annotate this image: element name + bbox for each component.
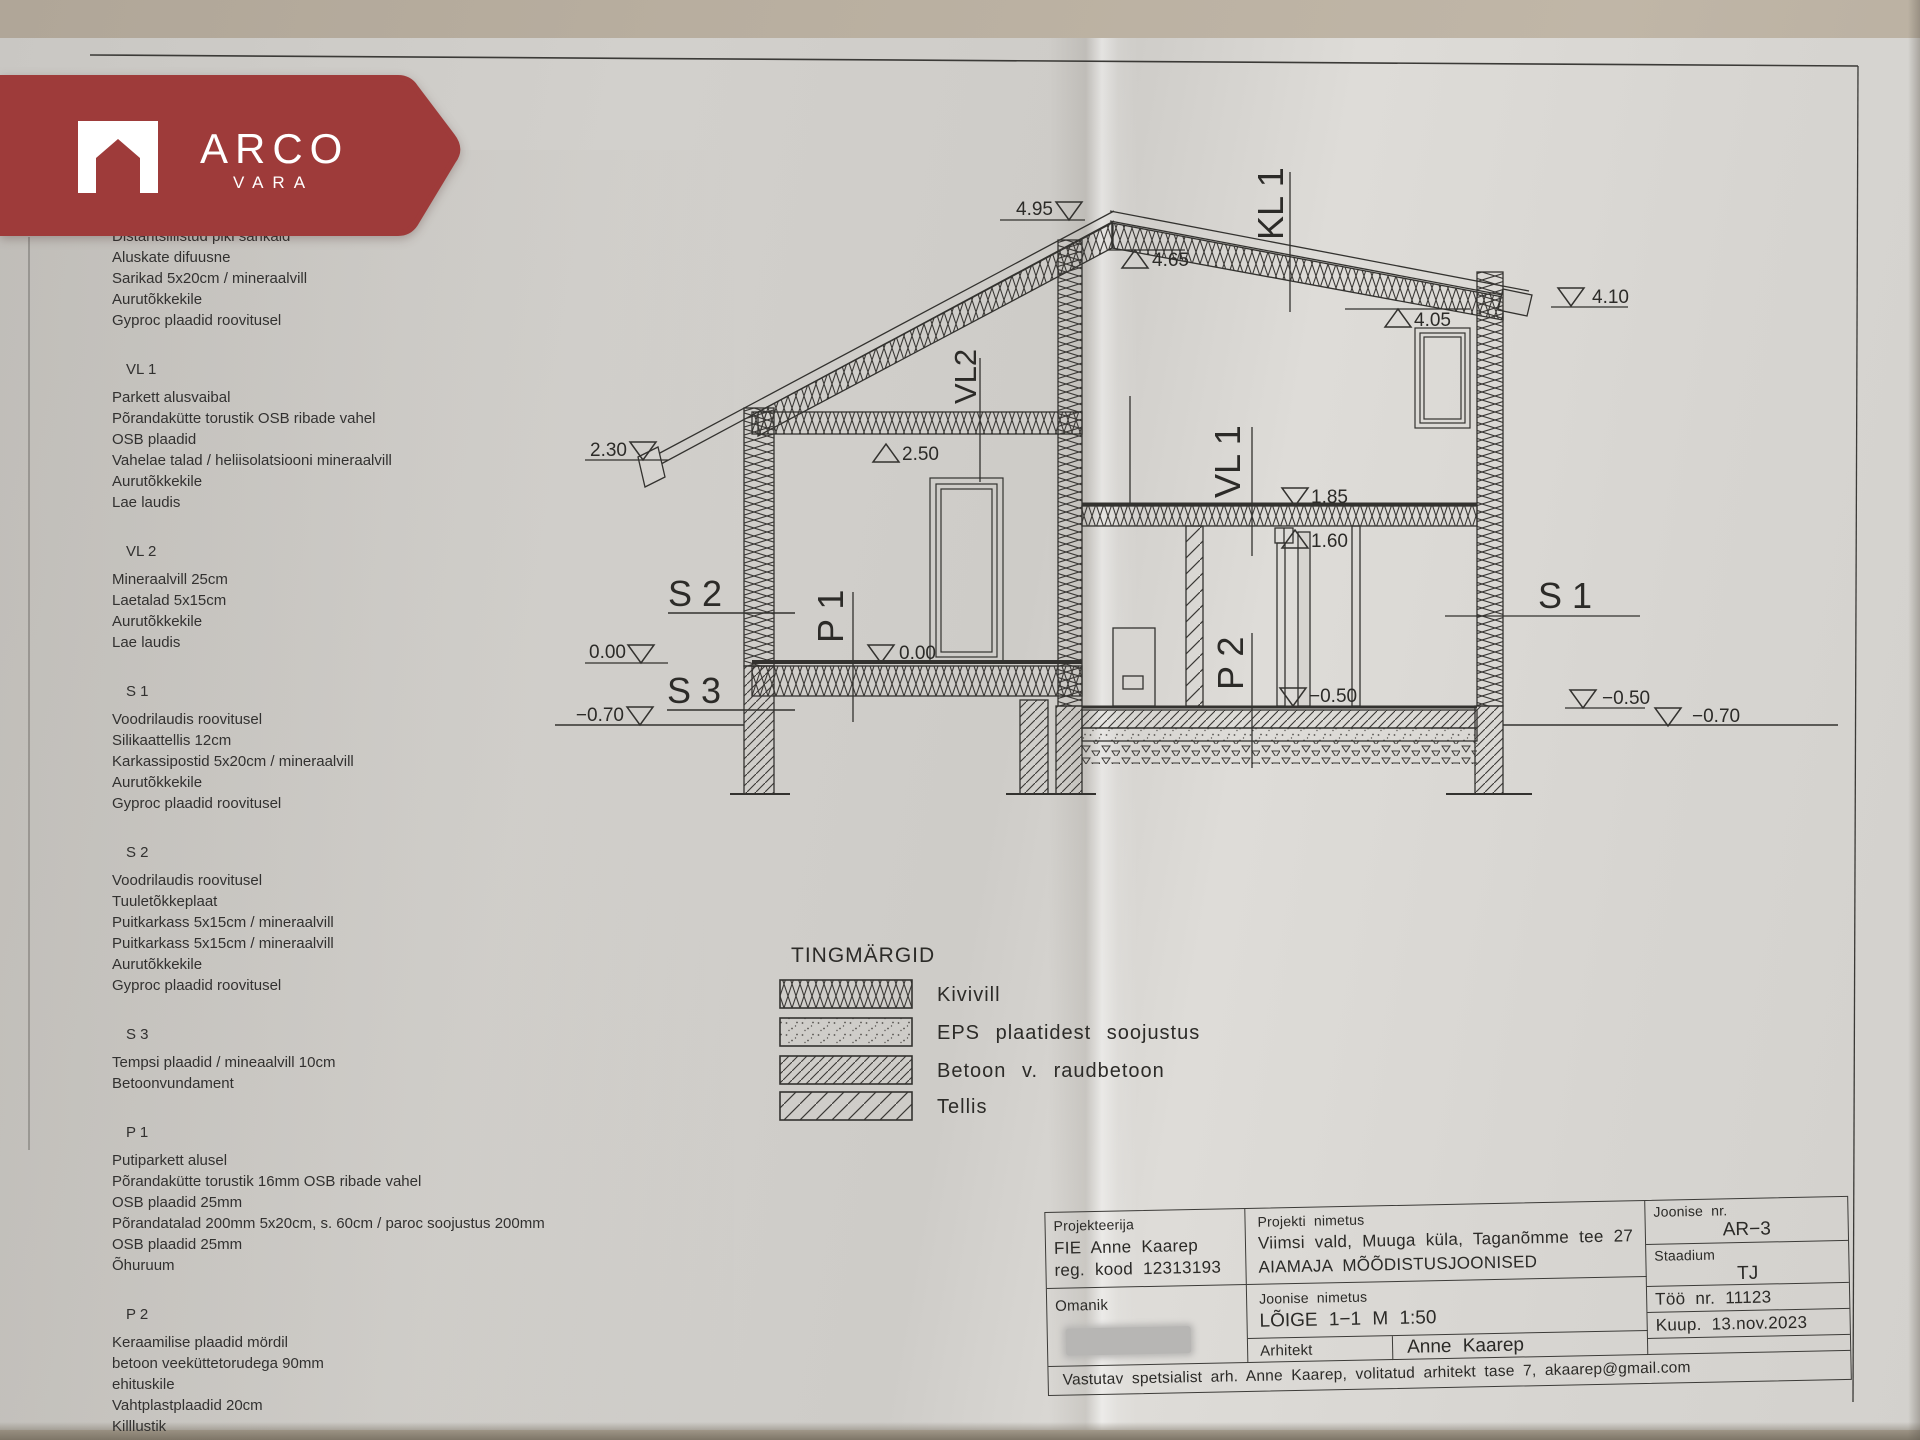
elevation-405: 4.05 (1414, 310, 1451, 331)
spec-line: Karkassipostid 5x20cm / mineraalvill (112, 751, 582, 772)
spec-line: Gyproc plaadid roovitusel (112, 310, 582, 331)
spec-line: Aurutõkkekile (112, 611, 582, 632)
spec-line: Tempsi plaadid / mineaalvill 10cm (112, 1052, 582, 1073)
joonise-nr-value: AR−3 (1646, 1217, 1848, 1243)
titleblock-projekt-cell: Projekti nimetus Viimsi vald, Muuga küla… (1245, 1201, 1646, 1285)
titleblock-joonise-nr-cell: Joonise nr. AR−3 (1645, 1197, 1848, 1245)
spec-line: Betoonvundament (112, 1073, 582, 1094)
titleblock-projekteerija-cell: Projekteerija FIE Anne Kaarep reg. kood … (1045, 1209, 1246, 1289)
legend-label-tellis: Tellis (937, 1096, 987, 1118)
projekteerija-name: FIE Anne Kaarep (1054, 1236, 1198, 1259)
spec-line: OSB plaadid (112, 429, 582, 450)
legend-swatch-betoon (780, 1056, 912, 1084)
titleblock-staadium-cell: Staadium TJ (1646, 1241, 1849, 1287)
elevation-410: 4.10 (1592, 287, 1629, 308)
logo-brand-text: ARCO (200, 125, 349, 172)
spec-line: Põrandatalad 200mm 5x20cm, s. 60cm / par… (112, 1213, 582, 1234)
label-s3: S 3 (667, 670, 721, 711)
legend-label-kivivill: Kivivill (937, 984, 1001, 1006)
spec-line: Voodrilaudis roovitusel (112, 870, 582, 891)
spec-block-title: S 3 (126, 1025, 582, 1045)
elevation-000-inner: 0.00 (899, 643, 936, 664)
spec-line: Vahelae talad / heliisolatsiooni mineraa… (112, 450, 582, 471)
omanik-label: Omanik (1055, 1297, 1108, 1315)
spec-line: Silikaattellis 12cm (112, 730, 582, 751)
arhitekt-value: Anne Kaarep (1407, 1334, 1524, 1358)
titleblock-arhitekt-label-cell: Arhitekt (1248, 1336, 1393, 1363)
legend-swatch-tellis (780, 1092, 912, 1120)
elevation-m070-right: −0.70 (1692, 706, 1740, 727)
titleblock-joonis-cell: Joonise nimetus LÕIGE 1−1 M 1:50 (1247, 1277, 1648, 1339)
house-icon (78, 121, 158, 193)
legend-label-eps: EPS plaatidest soojustus (937, 1022, 1200, 1044)
spec-line: Keraamilise plaadid mördil (112, 1332, 582, 1353)
spec-line: Aurutõkkekile (112, 772, 582, 793)
projekti-name: AIAMAJA MÕÕDISTUSJOONISED (1258, 1252, 1537, 1278)
spec-block: S 3Tempsi plaadid / mineaalvill 10cmBeto… (112, 1025, 582, 1094)
elevation-465: 4.65 (1152, 250, 1189, 271)
elevation-m050-right: −0.50 (1602, 688, 1650, 709)
spec-block-title: S 1 (126, 682, 582, 702)
titleblock-kuup-cell: Kuup. 13.nov.2023 (1647, 1309, 1849, 1339)
spec-block-title: S 2 (126, 843, 582, 863)
spec-line: Vahtplastplaadid 20cm (112, 1395, 582, 1416)
elevation-495: 4.95 (1016, 199, 1053, 220)
label-s2: S 2 (668, 573, 722, 614)
spec-line: Puitkarkass 5x15cm / mineraalvill (112, 933, 582, 954)
projekti-nimetus-label: Projekti nimetus (1257, 1212, 1364, 1230)
spec-block: P 2Keraamilise plaadid mördilbetoon veek… (112, 1305, 582, 1437)
projekteerija-label: Projekteerija (1053, 1216, 1134, 1234)
title-block: Projekteerija FIE Anne Kaarep reg. kood … (1044, 1196, 1852, 1396)
spec-line: ehituskile (112, 1374, 582, 1395)
paper-right-edge (1908, 0, 1920, 1440)
titleblock-omanik-cell: Omanik (1047, 1285, 1249, 1367)
elevation-250: 2.50 (902, 444, 939, 465)
projekteerija-regcode: reg. kood 12313193 (1054, 1258, 1221, 1281)
spec-line: Laetalad 5x15cm (112, 590, 582, 611)
joonise-nimetus-label: Joonise nimetus (1259, 1289, 1367, 1307)
spec-block-title: P 1 (126, 1123, 582, 1143)
spec-line: Putiparkett alusel (112, 1150, 582, 1171)
label-p1: P 1 (810, 590, 851, 643)
elevation-000-left: 0.00 (589, 642, 626, 663)
photographed-architectural-drawing: Distantsiliistud piki sarikaidAluskate d… (0, 0, 1920, 1440)
spec-line: Gyproc plaadid roovitusel (112, 793, 582, 814)
spec-block: S 2Voodrilaudis roovituselTuuletõkkeplaa… (112, 843, 582, 996)
label-vl1: VL 1 (1207, 425, 1248, 498)
spec-line: Aurutõkkekile (112, 289, 582, 310)
arco-vara-banner: ARCO VARA (0, 0, 520, 260)
omanik-redacted-value (1066, 1326, 1192, 1356)
label-kl1: KL 1 (1250, 167, 1291, 240)
spec-line: Lae laudis (112, 632, 582, 653)
spec-block: VL 1Parkett alusvaibalPõrandakütte torus… (112, 360, 582, 513)
spec-block: VL 2Mineraalvill 25cmLaetalad 5x15cmAuru… (112, 542, 582, 653)
spec-line: betoon veeküttetorudega 90mm (112, 1353, 582, 1374)
spec-line: Põrandakütte torustik 16mm OSB ribade va… (112, 1171, 582, 1192)
specs-column: Distantsiliistud piki sarikaidAluskate d… (112, 226, 582, 1437)
elevation-m050-inner: −0.50 (1309, 686, 1357, 707)
label-p2: P 2 (1210, 637, 1251, 690)
spec-block-title: P 2 (126, 1305, 582, 1325)
spec-line: Gyproc plaadid roovitusel (112, 975, 582, 996)
elevation-m070-left: −0.70 (576, 705, 624, 726)
spec-line: Tuuletõkkeplaat (112, 891, 582, 912)
spec-line: Õhuruum (112, 1255, 582, 1276)
spec-line: Puitkarkass 5x15cm / mineraalvill (112, 912, 582, 933)
spec-line: Sarikad 5x20cm / mineraalvill (112, 268, 582, 289)
spec-line: Aurutõkkekile (112, 954, 582, 975)
legend-swatch-kivivill (780, 980, 912, 1008)
spec-line: Killlustik (112, 1416, 582, 1437)
elevation-230: 2.30 (590, 440, 627, 461)
legend-label-betoon: Betoon v. raudbetoon (937, 1060, 1165, 1082)
spec-block: P 1Putiparkett aluselPõrandakütte torust… (112, 1123, 582, 1276)
spec-line: Parkett alusvaibal (112, 387, 582, 408)
staadium-label: Staadium (1654, 1247, 1715, 1264)
joonise-nr-label: Joonise nr. (1653, 1202, 1727, 1219)
spec-block-title: VL 2 (126, 542, 582, 562)
arhitekt-label: Arhitekt (1260, 1342, 1313, 1360)
spec-line: Mineraalvill 25cm (112, 569, 582, 590)
spec-line: OSB plaadid 25mm (112, 1192, 582, 1213)
logo-sub-text: VARA (233, 173, 314, 192)
label-s1: S 1 (1538, 575, 1592, 616)
spec-line: Lae laudis (112, 492, 582, 513)
spec-line: Voodrilaudis roovitusel (112, 709, 582, 730)
spec-line: Aurutõkkekile (112, 471, 582, 492)
legend-title: TINGMÄRGID (791, 944, 935, 967)
kuup: Kuup. 13.nov.2023 (1656, 1313, 1808, 1336)
ground-slab (1082, 707, 1477, 764)
spec-block-title: VL 1 (126, 360, 582, 380)
legend-swatch-eps (780, 1018, 912, 1046)
too-nr: Töö nr. 11123 (1655, 1287, 1772, 1309)
elevation-185: 1.85 (1311, 487, 1348, 508)
projekti-address: Viimsi vald, Muuga küla, Taganõmme tee 2… (1258, 1226, 1634, 1254)
legend: TINGMÄRGID Kivivill EPS plaatidest sooju… (780, 944, 1200, 1120)
titleblock-toonr-cell: Töö nr. 11123 (1647, 1283, 1849, 1313)
joonise-nimetus-value: LÕIGE 1−1 M 1:50 (1259, 1307, 1436, 1333)
spec-block: S 1Voodrilaudis roovituselSilikaattellis… (112, 682, 582, 814)
elevation-160: 1.60 (1311, 531, 1348, 552)
spec-line: OSB plaadid 25mm (112, 1234, 582, 1255)
label-vl2: VL2 (948, 349, 983, 404)
spec-line: Põrandakütte torustik OSB ribade vahel (112, 408, 582, 429)
